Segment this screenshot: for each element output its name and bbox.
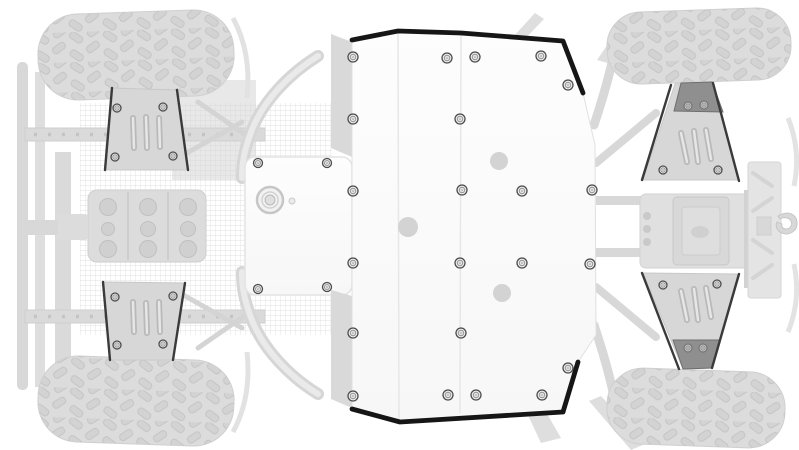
bolt xyxy=(111,153,119,161)
bolt xyxy=(348,258,358,268)
bolt xyxy=(517,258,527,268)
bolt xyxy=(456,328,466,338)
bolt xyxy=(113,104,121,112)
bolt xyxy=(323,159,332,168)
diff-mount xyxy=(56,214,88,240)
bolt xyxy=(713,280,721,288)
bolt xyxy=(563,80,573,90)
plug-dot xyxy=(289,198,295,204)
bolt xyxy=(442,53,452,63)
bolt xyxy=(699,344,707,352)
bolt xyxy=(169,292,177,300)
bolt xyxy=(517,186,527,196)
underbody-illustration-stage xyxy=(0,0,799,450)
bolt xyxy=(111,293,119,301)
bolt xyxy=(684,344,692,352)
plate-access-hole xyxy=(490,152,508,170)
bolt xyxy=(348,52,358,62)
bolt xyxy=(169,152,177,160)
front-upper-tire xyxy=(37,9,236,102)
bolt xyxy=(254,285,263,294)
bolt xyxy=(457,185,467,195)
main-skid-plate xyxy=(331,31,597,422)
front-diff-skid-plate xyxy=(245,157,352,295)
bolt xyxy=(455,114,465,124)
arm-guard-front-upper xyxy=(105,88,188,170)
bolt xyxy=(348,186,358,196)
bolt xyxy=(585,259,595,269)
bolt xyxy=(455,258,465,268)
front-differential-casting xyxy=(88,190,206,262)
bolt xyxy=(700,101,708,109)
bolt xyxy=(659,166,667,174)
rear-lower-tire xyxy=(606,367,787,449)
plate-access-hole xyxy=(398,217,418,237)
bolt xyxy=(159,103,167,111)
steering-rack xyxy=(26,220,58,235)
bolt xyxy=(563,363,573,373)
plate-seam xyxy=(460,34,461,413)
rear-upper-tire xyxy=(606,7,792,85)
bolt xyxy=(323,283,332,292)
bolt xyxy=(348,391,358,401)
plate-side-flange xyxy=(331,34,352,157)
bolt xyxy=(684,102,692,110)
bolt xyxy=(470,52,480,62)
bolt xyxy=(348,114,358,124)
bolt xyxy=(536,51,546,61)
bolt xyxy=(113,341,121,349)
arm-guard-front-lower xyxy=(103,282,185,360)
bolt xyxy=(537,390,547,400)
plate-body xyxy=(352,31,596,422)
diff-drain-plug xyxy=(257,187,283,213)
front-lower-tire xyxy=(37,355,236,448)
bolt xyxy=(254,159,263,168)
plate-access-hole xyxy=(493,284,511,302)
bolt xyxy=(443,390,453,400)
bolt xyxy=(587,185,597,195)
utv-underbody-skid-plate-illustration xyxy=(0,0,799,450)
hitch-receiver-slot xyxy=(757,217,771,235)
bolt xyxy=(471,390,481,400)
bolt xyxy=(659,281,667,289)
bolt xyxy=(159,340,167,348)
bolt xyxy=(348,328,358,338)
plate-side-flange xyxy=(331,290,352,408)
rear-gearbox-casting xyxy=(640,194,752,268)
bolt xyxy=(714,166,722,174)
